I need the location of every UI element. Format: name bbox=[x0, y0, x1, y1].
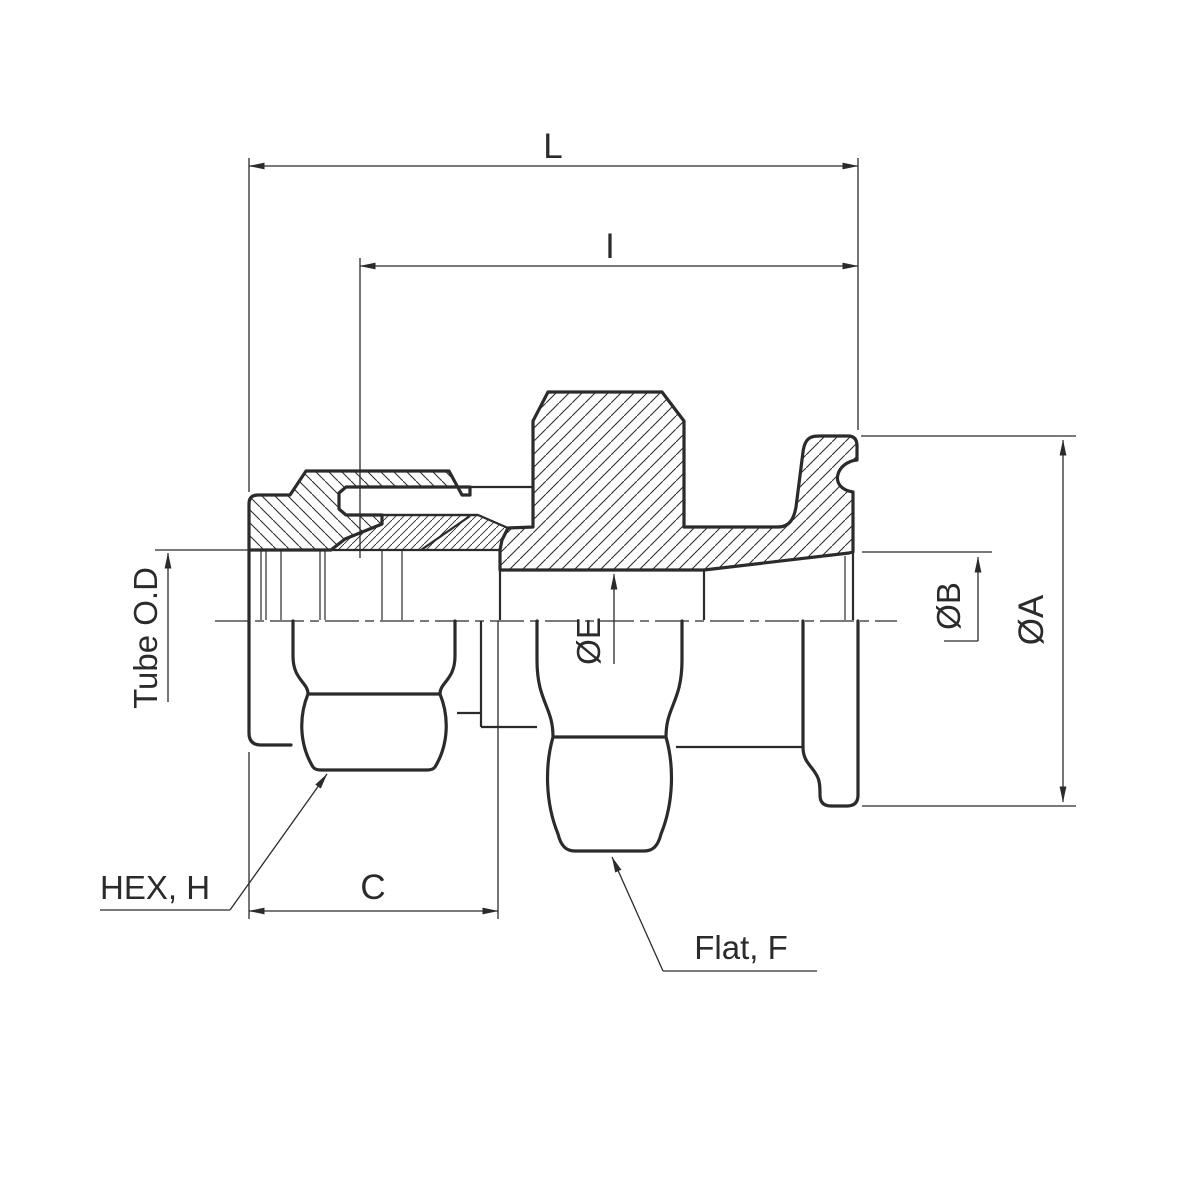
dim-label-C: C bbox=[360, 868, 385, 907]
paper-background bbox=[0, 0, 1180, 1180]
dim-label-I: I bbox=[605, 227, 615, 266]
dim-label-L: L bbox=[543, 127, 562, 166]
dim-label-tube-od: Tube O.D bbox=[127, 567, 164, 709]
dim-label-dia-a: ØA bbox=[1012, 594, 1051, 645]
dim-label-dia-b: ØB bbox=[930, 582, 967, 630]
fitting-drawing: L I Tube O.D ØE ØB bbox=[0, 0, 1180, 1180]
callout-label-flat: Flat, F bbox=[694, 929, 788, 966]
dim-label-bore-e: ØE bbox=[570, 617, 607, 665]
callout-label-hex: HEX, H bbox=[100, 869, 210, 906]
thread-band bbox=[339, 487, 533, 515]
